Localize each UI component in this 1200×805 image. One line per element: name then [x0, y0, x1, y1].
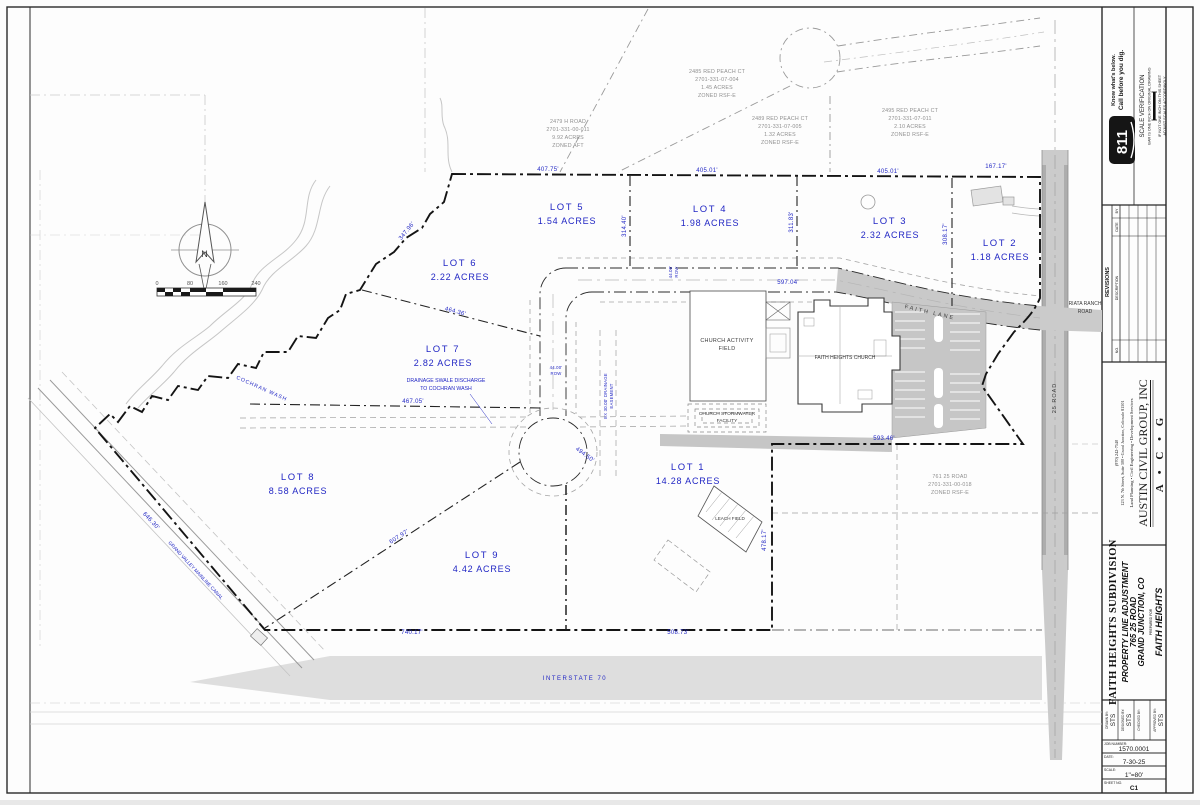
dim-exclusion-north: 593.46' [873, 436, 895, 442]
interstate-70-label: INTERSTATE 70 [543, 676, 607, 682]
parcel-line: 761 25 ROAD [932, 474, 967, 480]
811-logo-number: 811 [1114, 130, 1131, 154]
swale-callout-2: TO COCHRAN WASH [420, 386, 472, 392]
dim-top4: 167.17' [985, 164, 1007, 170]
lot-4-name: LOT 4 [693, 204, 727, 215]
parcel-line: 2489 RED PEACH CT [752, 116, 809, 122]
lot-4-acres: 1.98 ACRES [681, 218, 740, 228]
parcel-line: 1.45 ACRES [701, 85, 733, 91]
scale-verification-line1: BAR IS ONE INCH ON ORIGINAL DRAWING [1148, 67, 1152, 144]
dim-easement-2: EASEMENT [609, 383, 614, 408]
swale-callout-1: DRAINAGE SWALE DISCHARGE [407, 378, 486, 384]
riata-ranch-label1: RIATA RANCH [1069, 301, 1102, 307]
firm-initials: A • C • G [1154, 414, 1166, 493]
revisions-col-no: NO. [1115, 347, 1119, 353]
firm-services: Land Planning • Civil Engineering • Deve… [1129, 398, 1134, 507]
north-label: N [201, 249, 209, 259]
scale-tick-160: 160 [218, 281, 227, 287]
lot-3-acres: 2.32 ACRES [861, 230, 920, 240]
lot-7-acres: 2.82 ACRES [414, 358, 473, 368]
lot-8-acres: 8.58 ACRES [269, 486, 328, 496]
parcel-line: 9.92 ACRES [552, 135, 584, 141]
parcel-line: 2701-331-00-018 [928, 482, 972, 488]
parcel-line: 1.32 ACRES [764, 132, 796, 138]
interstate-70-band [190, 656, 1042, 700]
project-line3: GRAND JUNCTION, CO [1137, 577, 1146, 667]
know-whats-below: Know what's below. [1111, 54, 1117, 106]
lot-6-acres: 2.22 ACRES [431, 272, 490, 282]
dim-south2: 508.73' [667, 630, 689, 636]
sheet-no-label: SHEET NO. [1104, 781, 1122, 785]
lot-2-acres: 1.18 ACRES [971, 252, 1030, 262]
activity-field-label1: CHURCH ACTIVITY [700, 338, 753, 344]
parcel-line: 2701-331-07-005 [758, 124, 802, 130]
scale-label: SCALE: [1104, 768, 1116, 772]
dim-top1: 407.75' [537, 167, 559, 173]
parcel-line: 2701-331-00-011 [546, 127, 589, 133]
drawn-by-value: STS [1110, 713, 1117, 726]
revisions-title: REVISIONS [1105, 267, 1111, 297]
dim-row-w-2: ROW [550, 371, 562, 376]
parking-island [934, 316, 943, 342]
parcel-line: 2479 H ROAD [550, 119, 586, 125]
lot-1-acres: 14.28 ACRES [656, 476, 720, 486]
revisions-col-description: DESCRIPTION [1115, 275, 1119, 300]
dim-lot5-east: 314.40' [622, 215, 628, 237]
date-label: DATE: [1104, 755, 1114, 759]
dim-lot4-east: 311.83' [789, 211, 795, 232]
parcel-line: 2701-331-07-004 [695, 77, 739, 83]
approved-by-value: STS [1158, 713, 1165, 726]
revisions-col-date: DATE [1115, 222, 1119, 232]
approved-by-label: APPROVED BY: [1153, 708, 1157, 732]
dim-south1: 740.17' [401, 630, 423, 636]
scale-tick-80: 80 [187, 281, 193, 287]
parcel-line: ZONED RSF-E [698, 93, 736, 99]
parking-island [934, 368, 943, 398]
stormwater-label2: FACILITY [717, 418, 739, 424]
plat-drawing: N 0 80 160 240 LOT 1 14.28 ACRES LOT 2 1… [0, 0, 1200, 800]
drawn-by-label: DRAWN BY: [1105, 711, 1109, 729]
firm-name: AUSTIN CIVIL GROUP, INC [1136, 379, 1150, 527]
lot-8-name: LOT 8 [281, 472, 315, 483]
lot-7-name: LOT 7 [426, 344, 460, 355]
dim-top2: 405.01' [696, 168, 718, 174]
scale-verification-line3: ADJUST SCALES ACCORDINGLY [1163, 76, 1167, 136]
scale-tick-240: 240 [251, 281, 260, 287]
parcel-line: 2.10 ACRES [894, 124, 926, 130]
scale-value: 1"=80' [1125, 772, 1143, 779]
dim-row-ne-1: 44.00' [668, 266, 673, 279]
lot-5-acres: 1.54 ACRES [538, 216, 597, 226]
project-subdivision: FAITH HEIGHTS SUBDIVISION [1108, 539, 1119, 705]
lot-5-name: LOT 5 [550, 202, 584, 213]
date-value: 7-30-25 [1123, 759, 1146, 766]
lot-2-name: LOT 2 [983, 238, 1017, 249]
sheet-no-value: C1 [1130, 785, 1139, 792]
parking-island [934, 404, 943, 428]
lot-9-name: LOT 9 [465, 550, 499, 561]
811-logo: 811 [1109, 116, 1135, 164]
dim-easement-1: EX 30.00' DRAINAGE [603, 373, 608, 419]
activity-field-label2: FIELD [719, 346, 736, 352]
lot-6-name: LOT 6 [443, 258, 477, 269]
25-road-label: 25 ROAD [1052, 383, 1058, 414]
parcel-line: ZONED RSF-E [931, 490, 969, 496]
stormwater-label1: CHURCH STORMWATER [699, 411, 756, 417]
parcel-line: ZONED RSF-E [761, 140, 799, 146]
dim-road-north: 597.04' [777, 280, 799, 286]
project-client: FAITH HEIGHTS [1154, 588, 1164, 657]
lot-3-name: LOT 3 [873, 216, 907, 227]
dim-exclusion-west: 478.17' [762, 529, 768, 551]
dim-row-ne-2: ROW [674, 266, 679, 278]
leach-field-label: LEACH FIELD [715, 516, 745, 521]
lot-1-name: LOT 1 [671, 462, 705, 473]
church-label: FAITH HEIGHTS CHURCH [815, 355, 876, 361]
dim-row-w-1: 44.00' [550, 365, 563, 370]
lot-9-acres: 4.42 ACRES [453, 564, 512, 574]
scale-verification-title: SCALE VERIFICATION [1140, 75, 1146, 138]
checked-by-label: CHECKED BY: [1137, 709, 1141, 731]
parcel-761-25-road: 761 25 ROAD 2701-331-00-018 ZONED RSF-E [928, 474, 972, 496]
scale-verification-line2: IF NOT ONE INCH ON THIS SHEET [1158, 74, 1162, 137]
revisions-col-by: BY [1115, 208, 1119, 213]
firm-phone: (970) 242-7540 [1114, 440, 1119, 466]
parcel-line: ZONED RSF-E [891, 132, 929, 138]
dim-lot3-east: 308.17' [943, 223, 949, 245]
designed-by-label: DESIGNED BY: [1121, 709, 1125, 732]
riata-ranch-label2: ROAD [1078, 309, 1093, 315]
call-before-dig: Call before you dig. [1118, 50, 1125, 111]
dim-lot7-south: 467.05' [402, 399, 424, 405]
designed-by-value: STS [1126, 713, 1133, 726]
scale-tick-0: 0 [155, 281, 158, 287]
parcel-line: 2485 RED PEACH CT [689, 69, 746, 75]
job-number-value: 1570.0001 [1119, 746, 1150, 753]
parcel-line: 2495 RED PEACH CT [882, 108, 939, 114]
parcel-line: ZONED AFT [552, 143, 584, 149]
plan-sheet: N 0 80 160 240 LOT 1 14.28 ACRES LOT 2 1… [0, 0, 1200, 800]
parcel-line: 2701-331-07-011 [888, 116, 931, 122]
prepared-for-label: PREPARED FOR [1149, 608, 1153, 635]
dim-top3: 405.01' [877, 169, 899, 175]
